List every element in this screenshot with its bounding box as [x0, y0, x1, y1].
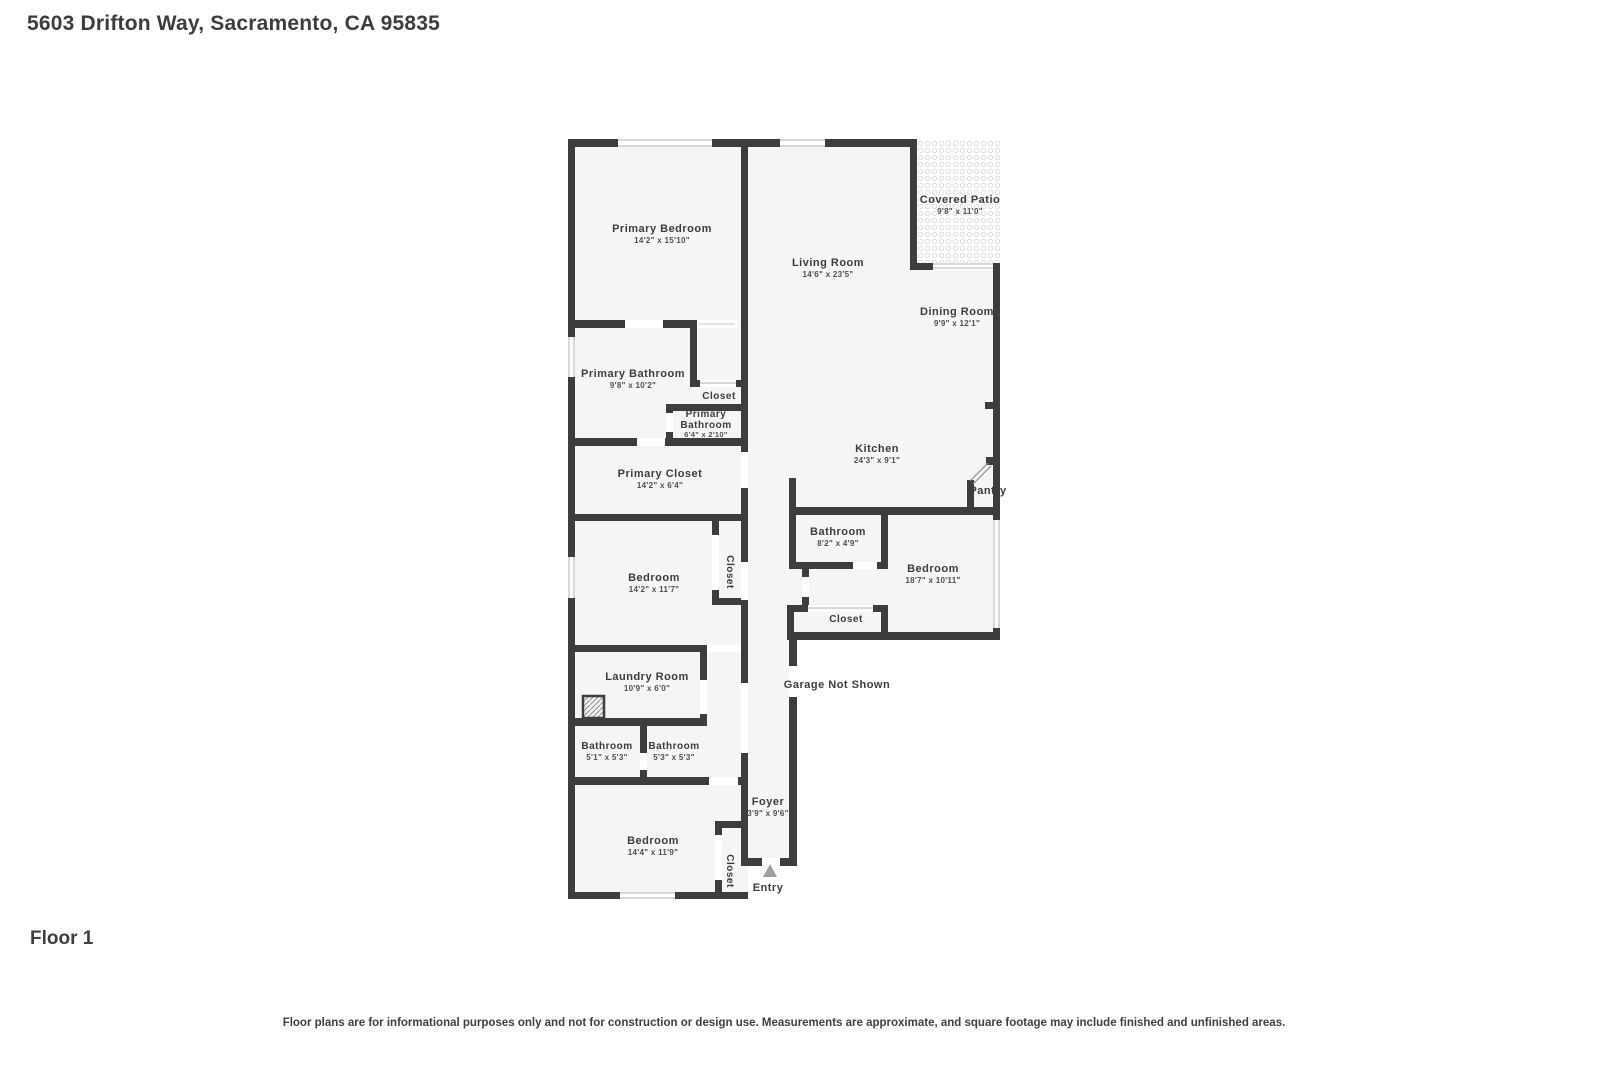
utility-hatch-box	[583, 696, 604, 718]
room-name: Closet	[702, 391, 736, 402]
room-label-closet-left: Closet	[724, 555, 735, 589]
room-label-bathroom-a: Bathroom 5'1" x 5'3"	[581, 741, 632, 762]
room-dims: 18'7" x 10'11"	[905, 576, 960, 585]
room-label-closet-bottom: Closet	[724, 854, 735, 888]
room-name: Pantry	[969, 485, 1007, 497]
door-opening	[853, 562, 877, 569]
window	[620, 892, 675, 899]
wall-segment	[789, 640, 797, 666]
wall-segment	[700, 652, 707, 680]
wall-segment	[802, 569, 809, 577]
room-name: Closet	[724, 555, 735, 589]
wall-segment	[789, 697, 797, 866]
wall-segment	[568, 645, 707, 652]
door-opening	[709, 777, 738, 785]
wall-segment	[741, 139, 748, 322]
wall-segment	[738, 777, 748, 785]
wall-segment	[910, 263, 933, 270]
wall-segment	[568, 514, 748, 521]
room-dims: 3'9" x 9'6"	[747, 809, 788, 818]
room-name: Dining Room	[920, 306, 994, 318]
window	[568, 337, 575, 377]
wall-segment	[741, 600, 748, 683]
wall-segment	[993, 263, 1000, 520]
door-opening	[712, 535, 719, 590]
wall-segment	[734, 380, 748, 387]
wall-segment	[789, 562, 853, 569]
wall-segment	[985, 402, 1000, 409]
room-label-bathroom-b: Bathroom 5'3" x 5'3"	[648, 741, 699, 762]
room-name: Bedroom	[627, 835, 679, 847]
wall-segment	[787, 632, 1000, 640]
room-dims: 8'2" x 4'9"	[817, 539, 858, 548]
door-opening	[700, 680, 707, 714]
wall-segment	[568, 320, 625, 328]
room-label-foyer: Foyer 3'9" x 9'6"	[747, 796, 788, 818]
room-name: Primary	[686, 409, 727, 420]
wall-segment	[568, 777, 709, 785]
room-name: Primary Closet	[618, 468, 703, 480]
window	[780, 139, 825, 147]
wall-segment	[715, 821, 722, 835]
door-opening	[715, 835, 722, 880]
room-dims: 5'1" x 5'3"	[586, 753, 627, 762]
wall-segment	[789, 478, 796, 569]
floor-plan-page: 5603 Drifton Way, Sacramento, CA 95835	[0, 0, 1600, 1067]
room-name: Bedroom	[628, 572, 680, 584]
window	[618, 139, 712, 147]
wall-segment	[802, 597, 809, 605]
wall-segment	[986, 457, 1000, 465]
wall-segment	[780, 858, 797, 866]
room-label-living-room: Living Room 14'6" x 23'5"	[792, 257, 864, 279]
window	[993, 520, 1000, 628]
floor-label: Floor 1	[30, 928, 93, 950]
room-name: Bedroom	[907, 563, 959, 575]
room-name: Closet	[724, 854, 735, 888]
room-label-bathroom-right: Bathroom 8'2" x 4'9"	[810, 526, 866, 548]
door-opening	[741, 452, 748, 488]
room-dims: 9'9" x 12'1"	[934, 319, 980, 328]
room-name: Kitchen	[855, 443, 899, 455]
door-opening	[707, 645, 741, 652]
room-dims: 9'8" x 10'2"	[610, 381, 656, 390]
sliding-door	[808, 605, 873, 612]
sliding-door	[933, 263, 993, 270]
wall-segment	[640, 726, 647, 753]
wall-segment	[910, 139, 917, 270]
door-opening	[802, 577, 809, 597]
wall-segment	[690, 320, 697, 387]
wall-segment	[666, 404, 673, 413]
room-dims: 5'3" x 5'3"	[653, 753, 694, 762]
room-dims: 14'2" x 11'7"	[629, 585, 679, 594]
door-opening	[666, 413, 673, 432]
wall-segment	[741, 858, 762, 866]
window	[568, 557, 575, 598]
room-name: Primary Bathroom	[581, 368, 685, 380]
room-name: Bathroom	[810, 526, 866, 538]
wall-segment	[712, 519, 719, 535]
room-dims: 14'2" x 15'10"	[634, 236, 690, 245]
room-name: Laundry Room	[605, 671, 689, 683]
room-name: Closet	[829, 614, 863, 625]
door-opening	[640, 753, 647, 770]
disclaimer-text: Floor plans are for informational purpos…	[0, 1017, 1568, 1029]
room-dims: 14'4" x 11'9"	[628, 848, 678, 857]
door-opening	[625, 320, 663, 328]
room-dims: 24'3" x 9'1"	[854, 456, 900, 465]
sliding-door	[700, 380, 736, 387]
room-name: Living Room	[792, 257, 864, 269]
room-dims: 10'9" x 6'0"	[624, 684, 670, 693]
room-name: Foyer	[752, 796, 785, 808]
door-opening	[741, 562, 748, 600]
wall-segment	[881, 507, 888, 569]
wall-segment	[741, 488, 748, 562]
room-dims: 14'6" x 23'5"	[803, 270, 854, 279]
room-label-pantry: Pantry	[969, 485, 1007, 497]
room-name: Bathroom	[581, 741, 632, 752]
door-opening	[741, 683, 748, 753]
room-label-bedroom-bottom: Bedroom 14'4" x 11'9"	[627, 835, 679, 857]
wall-segment	[568, 438, 637, 446]
entry-label: Entry	[753, 864, 784, 894]
garage-note: Garage Not Shown	[784, 679, 890, 691]
room-label-bedroom-right: Bedroom 18'7" x 10'11"	[905, 563, 960, 585]
room-dims: 14'2" x 6'4"	[637, 481, 683, 490]
room-name: Bathroom	[648, 741, 699, 752]
room-name: Primary Bedroom	[612, 223, 712, 235]
room-name: Covered Patio	[920, 194, 1000, 206]
room-label-primary-bathroom-small: Primary Bathroom 6'4" x 2'10"	[680, 409, 731, 439]
room-name: Entry	[753, 882, 784, 894]
room-label-kitchen: Kitchen 24'3" x 9'1"	[854, 443, 900, 465]
room-dims: 6'4" x 2'10"	[684, 430, 728, 439]
room-name: Garage Not Shown	[784, 679, 890, 691]
room-label-hall-closet: Closet	[702, 391, 736, 402]
door-opening	[637, 438, 665, 446]
entry-door-opening	[762, 858, 780, 866]
room-label-bedroom-left: Bedroom 14'2" x 11'7"	[628, 572, 680, 594]
wall-segment	[665, 438, 748, 446]
floor-plan: Primary Bedroom 14'2" x 15'10" Living Ro…	[0, 0, 1600, 1067]
room-dims: 9'8" x 11'0"	[937, 207, 983, 216]
room-label-closet-right: Closet	[829, 614, 863, 625]
